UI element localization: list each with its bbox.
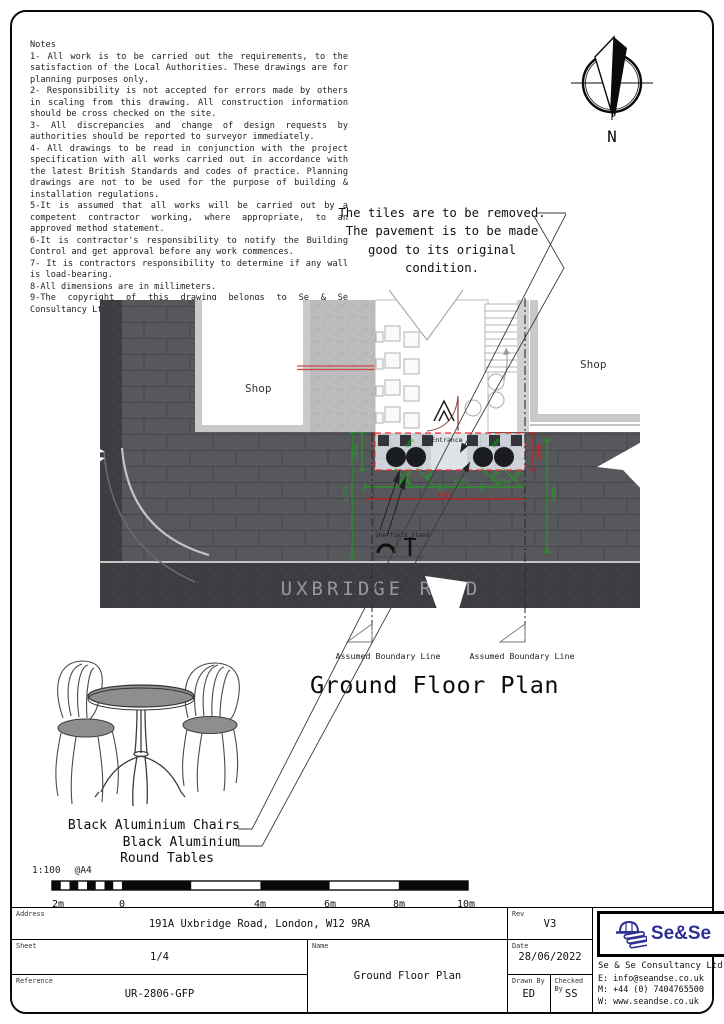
tiles-line-3: good to its original condition. <box>333 241 551 278</box>
note-line: 6-It is contractor's responsibility to n… <box>30 236 348 259</box>
break-mark-road <box>425 576 467 642</box>
title-block: Address 191A Uxbridge Road, London, W12 … <box>12 907 712 1012</box>
scale-ratio: 1:100 <box>32 865 61 876</box>
sheffield-stand-label: Sheffield Stand <box>375 532 430 539</box>
north-label: N <box>607 127 617 146</box>
rev-value: V3 <box>544 918 557 930</box>
titleblock-address-cell: Address 191A Uxbridge Road, London, W12 … <box>12 908 508 940</box>
dim-seg3: 1824 <box>495 478 511 486</box>
reference-label: Reference <box>16 977 53 985</box>
name-label: Name <box>312 942 328 950</box>
tiles-annotation: The tiles are to be removed. The pavemen… <box>333 204 551 278</box>
address-value: 191A Uxbridge Road, London, W12 9RA <box>149 918 370 930</box>
cafe-interior <box>375 300 522 435</box>
hard-hat-icon <box>615 919 647 949</box>
address-label: Address <box>16 910 45 918</box>
titleblock-sheet-cell: Sheet 1/4 <box>12 940 308 975</box>
furniture-label-aluminium: Black Aluminium <box>58 835 240 852</box>
drawing-title: Ground Floor Plan <box>310 671 559 699</box>
scale-paper: @A4 <box>75 865 92 876</box>
dim-right-run: 1800 <box>550 487 558 503</box>
tiles-line-2: The pavement is to be made <box>333 222 551 240</box>
tiles-line-1: The tiles are to be removed. <box>333 204 551 222</box>
boundary-label-left: Assumed Boundary Line <box>336 651 441 661</box>
outdoor-seating: Entrance <box>375 433 525 470</box>
dim-depth-left: 1000 <box>352 444 360 460</box>
drawn-by-cell: Drawn By ED <box>508 975 550 1012</box>
note-line: 7- It is contractors responsibility to d… <box>30 259 348 282</box>
furniture-label-chairs: Black Aluminium Chairs <box>58 818 240 835</box>
reference-value: UR-2806-GFP <box>125 988 195 1000</box>
party-wall <box>517 300 529 432</box>
titleblock-company-cell: Se&Se Se & Se Consultancy Ltd. E: info@s… <box>593 908 724 1012</box>
company-logo: Se&Se <box>597 911 724 957</box>
company-email: E: info@seandse.co.uk <box>598 973 724 984</box>
dim-left-run: 1778 <box>342 486 350 502</box>
dim-depth-right: 1000 <box>535 444 543 460</box>
company-name: Se & Se Consultancy Ltd. <box>598 961 724 971</box>
company-phone: M: +44 (0) 7404765500 <box>598 984 724 995</box>
shop-left-label: Shop <box>245 382 272 395</box>
sheet-value: 1/4 <box>150 951 169 963</box>
stairs <box>485 304 522 380</box>
company-info: Se & Se Consultancy Ltd. E: info@seandse… <box>597 957 724 1007</box>
titleblock-date-cell: Date 28/06/2022 <box>508 940 593 975</box>
notes-block: Notes 1- All work is to be carried out t… <box>30 40 348 316</box>
note-line: 4- All drawings to be read in conjunctio… <box>30 144 348 202</box>
checked-by-label: Checked By <box>555 977 593 993</box>
note-line: 1- All work is to be carried out the req… <box>30 52 348 87</box>
titleblock-rev-cell: Rev V3 <box>508 908 593 940</box>
titleblock-drawn-checked-cell: Drawn By ED Checked By SS <box>508 975 593 1012</box>
notes-title: Notes <box>30 40 348 52</box>
titleblock-reference-cell: Reference UR-2806-GFP <box>12 975 308 1012</box>
drawn-by-value: ED <box>522 988 535 1000</box>
date-label: Date <box>512 942 528 950</box>
furniture-labels: Black Aluminium Chairs Black Aluminium R… <box>58 818 240 868</box>
note-line: 5-It is assumed that all works will be c… <box>30 201 348 236</box>
drawn-by-label: Drawn By <box>512 977 545 985</box>
note-line: 2- Responsibility is not accepted for er… <box>30 86 348 121</box>
company-website: W: www.seandse.co.uk <box>598 996 724 1007</box>
drawing-sheet: Notes 1- All work is to be carried out t… <box>0 0 724 1024</box>
boundary-label-right: Assumed Boundary Line <box>470 651 575 661</box>
bistro-set-illustration <box>38 656 250 818</box>
floor-plan: UXBRIDGE ROAD Shop <box>75 290 645 670</box>
dim-seg2: 1052 <box>453 478 469 486</box>
shop-left: Shop <box>195 300 310 432</box>
note-line: 3- All discrepancies and change of desig… <box>30 121 348 144</box>
name-value: Ground Floor Plan <box>354 970 461 982</box>
sheet-label: Sheet <box>16 942 36 950</box>
date-value: 28/06/2022 <box>518 951 581 963</box>
shop-right-label: Shop <box>580 358 607 371</box>
shop-right: Shop <box>530 300 640 425</box>
rev-label: Rev <box>512 910 524 918</box>
dim-total: 4387 <box>437 491 453 499</box>
checked-by-cell: Checked By SS <box>550 975 593 1012</box>
north-arrow-icon: N <box>567 30 657 148</box>
company-logo-text: Se&Se <box>651 923 711 945</box>
scale-note: 1:100@A4 <box>32 865 106 876</box>
entrance-label: Entrance <box>431 436 462 444</box>
titleblock-name-cell: Name Ground Floor Plan <box>308 940 508 1012</box>
